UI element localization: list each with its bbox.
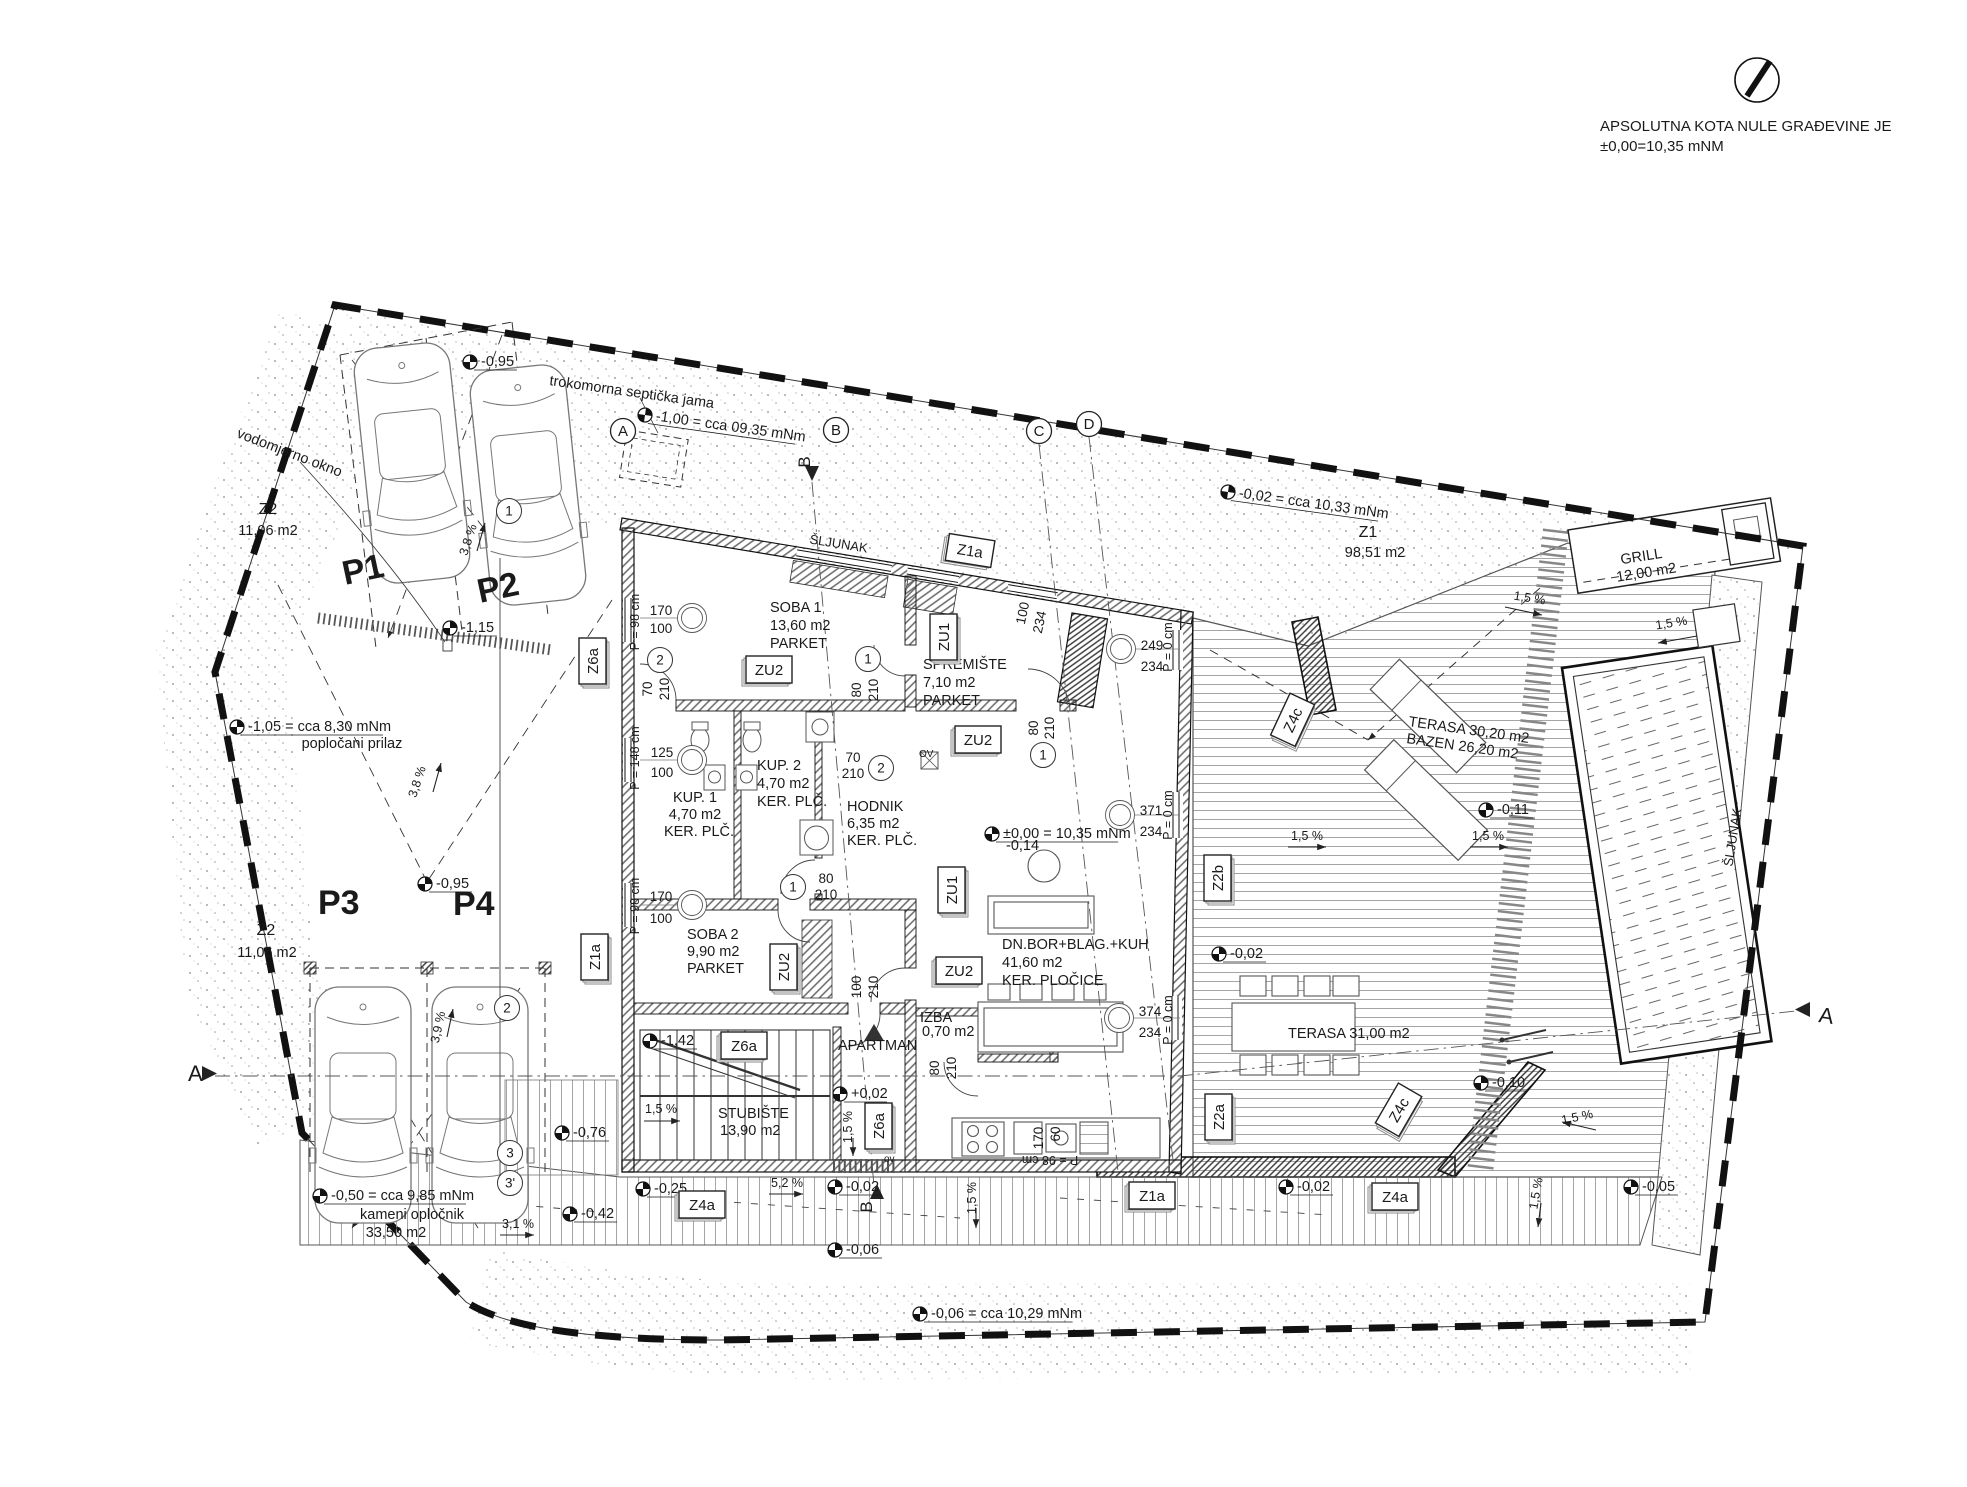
section-letter: A	[618, 423, 628, 440]
plan-label: SOBA 1	[770, 600, 822, 616]
plan-label: 4,70 m2	[757, 776, 809, 792]
zone-tag: ZU2	[951, 726, 1001, 756]
plan-label: 210	[944, 1057, 959, 1080]
elevation-value: -0,95	[481, 354, 514, 370]
elevation-marker: -0,11	[1479, 802, 1533, 818]
elevation-symbol-fill	[443, 628, 450, 635]
plan-label: 374	[1139, 1004, 1162, 1019]
zone-tag: ZU2	[742, 656, 792, 686]
plan-label: P = 0 cm	[1161, 790, 1175, 839]
elevation-value: -0,42	[581, 1206, 614, 1222]
elevation-symbol-fill	[425, 877, 432, 884]
plan-label: kameni opločnik	[360, 1207, 465, 1223]
zone-tag: Z6a	[865, 1103, 895, 1153]
plan-label: 80	[1026, 720, 1041, 735]
plan-label: P = 148 cm	[628, 726, 642, 789]
elevation-marker: -1,15	[443, 620, 497, 636]
zone-tag-label: ZU2	[755, 662, 783, 679]
plan-label: 9,90 m2	[687, 944, 739, 960]
plan-label: 80	[849, 682, 864, 697]
plan-label: 210	[1042, 717, 1057, 740]
plan-label: P = 98 cm	[628, 878, 642, 934]
plan-label: 210	[815, 887, 838, 902]
plan-label: 0,70 m2	[922, 1024, 974, 1040]
plan-label: OV	[919, 749, 934, 760]
round-table	[1028, 850, 1060, 882]
stove	[962, 1122, 1004, 1156]
plan-label: 100	[650, 621, 673, 636]
plan-label: 100	[650, 911, 673, 926]
plan-label: P3	[318, 884, 360, 922]
zone-tag-label: Z1a	[587, 943, 604, 970]
plan-label: 80	[818, 871, 833, 886]
number-marker: 1	[781, 875, 806, 900]
elevation-marker: -0,02	[828, 1179, 882, 1195]
zone-tag-label: Z1a	[1139, 1188, 1166, 1205]
elevation-symbol-fill	[418, 884, 425, 891]
elevation-marker: -0,06	[828, 1242, 882, 1258]
site-plan-drawing: trokomorna septička jamavodomjerno oknoZ…	[0, 0, 1967, 1487]
number-marker: 1	[856, 647, 881, 672]
plan-label: 210	[842, 766, 865, 781]
axis-marker	[1105, 1004, 1134, 1033]
elevation-value: -1,05 = cca 8,30 mNm	[248, 719, 391, 735]
plan-label: 100	[849, 976, 864, 999]
plan-label: 170	[650, 603, 673, 618]
zone-tag: ZU1	[930, 614, 960, 664]
section-marker: B	[824, 418, 849, 443]
section-marker: C	[1027, 419, 1052, 444]
plan-label: B	[857, 1201, 876, 1212]
zone-tag-label: Z6a	[585, 647, 602, 674]
elevation-marker: -0,95	[463, 354, 517, 370]
zone-tag: Z6a	[579, 638, 609, 688]
number-label: 3	[506, 1146, 514, 1161]
plan-label: 170	[1031, 1127, 1046, 1150]
number-marker: 2	[495, 996, 520, 1021]
plan-label: KUP. 2	[757, 758, 801, 774]
elevation-value: -0,11	[1497, 802, 1529, 818]
elevation-marker: -0,50 = cca 9,85 mNm	[313, 1188, 474, 1204]
plan-label: 125	[651, 745, 674, 760]
elevation-marker: -0,10	[1474, 1075, 1528, 1091]
plan-label: 3,8 %	[406, 764, 429, 799]
elevation-marker: ±0,00 = 10,35 mNm	[985, 826, 1131, 842]
elevation-symbol-fill	[828, 1250, 835, 1257]
number-marker: 1	[1031, 743, 1056, 768]
north-arrow-icon	[1735, 58, 1779, 102]
fridge	[1080, 1122, 1108, 1154]
plan-label: 70	[845, 750, 860, 765]
plan-label: SOBA 2	[687, 927, 739, 943]
elevation-symbol-fill	[450, 621, 457, 628]
plan-label: ov	[884, 1154, 895, 1165]
section-marker: A	[611, 419, 636, 444]
number-label: 2	[503, 1001, 511, 1016]
zone-tag-label: Z4a	[689, 1197, 716, 1214]
plan-label: PARKET	[923, 693, 980, 709]
plan-label: 234	[1140, 824, 1163, 839]
axis-marker	[678, 746, 707, 775]
zone-tag: Z1a	[1125, 1182, 1175, 1212]
axis-marker	[1106, 801, 1135, 830]
plan-label: 371	[1140, 803, 1163, 818]
number-marker: 2	[648, 648, 673, 673]
plan-label: APARTMAN	[838, 1038, 917, 1054]
plan-label: TERASA 31,00 m2	[1288, 1026, 1410, 1042]
plan-label: 1,5 %	[965, 1182, 979, 1214]
floor-plan-page: { "header": { "line1": "APSOLUTNA KOTA N…	[0, 0, 1967, 1487]
section-letter: B	[831, 422, 841, 439]
number-label: 3'	[505, 1176, 515, 1191]
elevation-value: -1,15	[461, 620, 494, 636]
elevation-value: -0,06 = cca 10,29 mNm	[931, 1306, 1082, 1322]
number-label: 1	[505, 504, 513, 519]
zone-tag-label: ZU2	[776, 953, 793, 981]
zone-tag-label: ZU2	[964, 732, 992, 749]
plan-label: Z2	[257, 922, 276, 939]
elevation-marker: +0,02	[833, 1086, 888, 1102]
plan-label: 70	[640, 681, 655, 696]
plan-label: 11,06 m2	[238, 523, 297, 539]
plan-label: 4,70 m2	[669, 807, 721, 823]
plan-label: P = 0 cm	[1161, 622, 1175, 671]
plan-label: A	[188, 1061, 203, 1086]
zone-tag-label: Z6a	[871, 1112, 888, 1139]
zone-tag: Z4a	[1368, 1183, 1418, 1213]
number-label: 1	[1039, 748, 1047, 763]
zone-tag-label: Z6a	[731, 1038, 758, 1055]
section-marker: D	[1077, 412, 1102, 437]
zone-tag-label: ZU1	[936, 623, 953, 651]
plan-label: DN.BOR+BLAG.+KUH	[1002, 937, 1149, 953]
plan-label: PARKET	[687, 961, 744, 977]
elevation-marker: -1,05 = cca 8,30 mNm	[230, 719, 391, 735]
zone-tag: Z2b	[1204, 855, 1234, 905]
plan-label: PARKET	[770, 636, 827, 652]
elevation-marker: -0,42	[563, 1206, 617, 1222]
elevation-value: ±0,00 = 10,35 mNm	[1003, 826, 1131, 842]
plan-label: 249	[1141, 638, 1164, 653]
plan-label: KER. PLČ.	[664, 823, 734, 840]
plan-label: STUBIŠTE	[718, 1105, 789, 1122]
elevation-marker: -0,02	[1212, 946, 1266, 962]
zone-tag: Z6a	[717, 1032, 767, 1062]
elevation-value: -0,05	[1642, 1179, 1675, 1195]
plan-label: P = 98 cm	[628, 594, 642, 650]
number-label: 2	[877, 761, 885, 776]
plan-label: 11,06 m2	[237, 945, 296, 961]
plan-label: 33,50 m2	[366, 1225, 426, 1241]
plan-label: KER. PLOČICE	[1002, 972, 1104, 989]
elevation-marker: -0,95	[418, 876, 472, 892]
plan-label: Z2	[259, 501, 278, 518]
radiator	[802, 920, 832, 998]
plan-label: 1,5 %	[841, 1111, 855, 1143]
wall-south	[622, 1160, 1181, 1172]
plan-label: 210	[866, 679, 881, 702]
plan-label: 210	[657, 678, 672, 701]
plan-label: 3,1 %	[502, 1217, 534, 1231]
plan-label: 13,60 m2	[770, 618, 830, 634]
elevation-value: -1,42	[661, 1033, 694, 1049]
plan-label: 80	[927, 1060, 942, 1075]
plan-label: 1,5 %	[1472, 829, 1504, 843]
elevation-value: -0,76	[573, 1125, 606, 1141]
elevation-value: -0,02	[1297, 1179, 1330, 1195]
plan-label: P = 0 cm	[1161, 995, 1175, 1044]
plan-label: KER. PLČ.	[757, 793, 827, 810]
elevation-marker: -0,05	[1624, 1179, 1678, 1195]
zone-tag: Z4a	[675, 1191, 725, 1221]
zone-tag: Z2a	[1205, 1094, 1235, 1144]
zone-tag: Z1a	[581, 934, 611, 984]
datum-note-line2: ±0,00=10,35 mNM	[1600, 137, 1967, 157]
section-letter: D	[1084, 416, 1095, 433]
number-label: 1	[789, 880, 797, 895]
plan-label: 41,60 m2	[1002, 955, 1062, 971]
number-label: 1	[864, 652, 872, 667]
zone-tag-label: Z4a	[1382, 1189, 1409, 1206]
elevation-value: -0,02	[1230, 946, 1263, 962]
number-label: 2	[656, 653, 664, 668]
zone-tag: ZU2	[770, 944, 800, 994]
number-marker: 3	[498, 1141, 523, 1166]
plan-label: B	[795, 456, 814, 467]
elevation-value: +0,02	[851, 1086, 888, 1102]
curb-band	[318, 618, 552, 650]
toilet	[743, 728, 761, 752]
plan-label: KUP. 1	[673, 790, 717, 806]
elevation-value: -0,10	[1492, 1075, 1525, 1091]
plan-label: KER. PLČ.	[847, 832, 917, 849]
plan-label: 1,5 %	[645, 1102, 677, 1116]
section-letter: C	[1034, 423, 1045, 440]
axis-marker	[678, 604, 707, 633]
plan-label: 5,2 %	[771, 1176, 803, 1190]
plan-label: A	[1817, 1002, 1835, 1029]
zone-tag-label: ZU2	[945, 963, 973, 980]
axis-marker	[678, 891, 707, 920]
plan-label: HODNIK	[847, 799, 904, 815]
zone-tag: ZU2	[932, 957, 982, 987]
plan-label: Z1	[1359, 524, 1378, 541]
elevation-value: -0,06	[846, 1242, 879, 1258]
elevation-value: -0,50 = cca 9,85 mNm	[331, 1188, 474, 1204]
axis-marker	[1107, 635, 1136, 664]
plan-label: 234	[1139, 1025, 1162, 1040]
number-marker: 2	[869, 756, 894, 781]
elevation-marker: -0,06 = cca 10,29 mNm	[913, 1306, 1082, 1322]
zone-tag: ZU1	[938, 867, 968, 917]
plan-label: 170	[650, 889, 673, 904]
elevation-value: -0,02	[846, 1179, 879, 1195]
zone-tag-label: ZU1	[944, 876, 961, 904]
plan-label: 98,51 m2	[1345, 545, 1405, 561]
plan-label: P1	[339, 547, 388, 593]
zone-tag-label: Z2b	[1210, 865, 1227, 891]
plan-label: 100	[651, 765, 674, 780]
plan-label: 7,10 m2	[923, 675, 975, 691]
elevation-marker: -1,42	[643, 1033, 697, 1049]
plan-label: 6,35 m2	[847, 816, 899, 832]
elevation-marker: -0,02	[1279, 1179, 1333, 1195]
plan-label: 210	[866, 976, 881, 999]
plan-label: 13,90 m2	[720, 1123, 780, 1139]
elevation-value: -0,95	[436, 876, 469, 892]
number-marker: 3'	[498, 1171, 523, 1196]
plan-label: 60	[1048, 1126, 1063, 1141]
datum-note-line1: APSOLUTNA KOTA NULE GRAĐEVINE JE	[1600, 117, 1967, 137]
plan-label: popločani prilaz	[302, 736, 403, 752]
plan-label: P = 98 cm	[1022, 1153, 1078, 1167]
elevation-marker: -0,76	[555, 1125, 609, 1141]
number-marker: 1	[497, 499, 522, 524]
plan-label: 1,5 %	[1291, 829, 1323, 843]
pool-skimmer-box	[1693, 604, 1740, 648]
zone-tag-label: Z2a	[1211, 1103, 1228, 1130]
